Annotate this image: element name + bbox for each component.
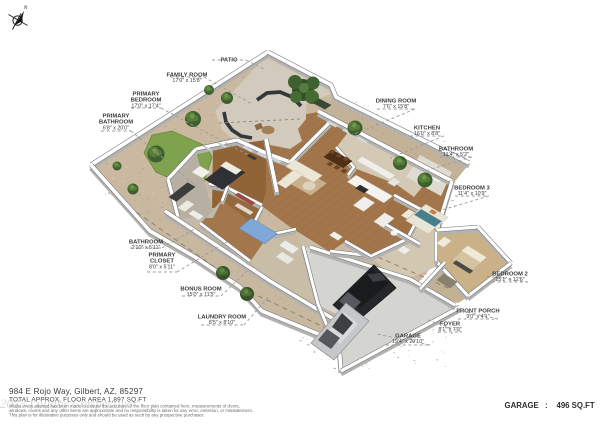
svg-text:17′0″ x 15′8″: 17′0″ x 15′8″ bbox=[172, 78, 201, 84]
svg-text:8′0″ x 5′11″: 8′0″ x 5′11″ bbox=[149, 264, 175, 270]
svg-text:N: N bbox=[23, 5, 28, 11]
svg-text:PRIMARY: PRIMARY bbox=[149, 252, 176, 258]
svg-text:PRIMARY: PRIMARY bbox=[133, 91, 160, 97]
svg-text:PRIMARY: PRIMARY bbox=[103, 113, 130, 119]
svg-text:6′8″ x 20′0″: 6′8″ x 20′0″ bbox=[103, 125, 129, 131]
svg-text:This plan is for illustrative: This plan is for illustrative purposes o… bbox=[9, 412, 204, 417]
svg-text:15′0″ x 11′5″: 15′0″ x 11′5″ bbox=[187, 292, 216, 298]
svg-text:19′4″ x 29′10″: 19′4″ x 29′10″ bbox=[392, 339, 424, 345]
svg-text:984 E Rojo Way, Gilbert, AZ, 8: 984 E Rojo Way, Gilbert, AZ, 85297 bbox=[9, 387, 143, 396]
